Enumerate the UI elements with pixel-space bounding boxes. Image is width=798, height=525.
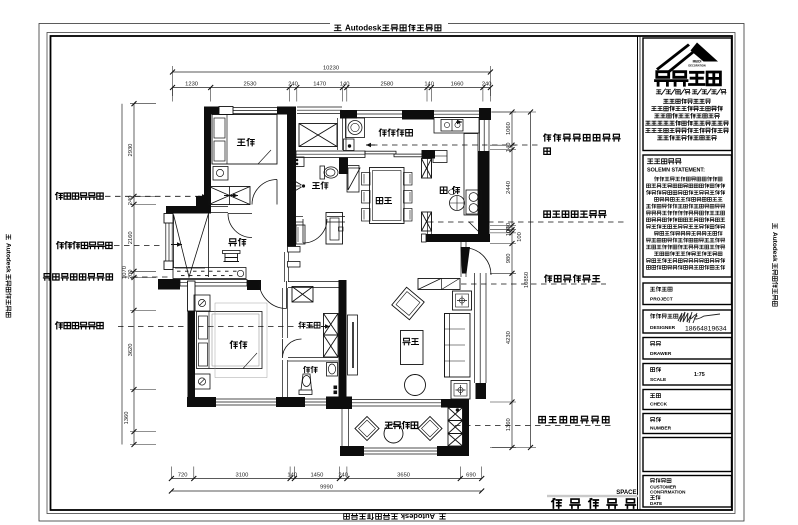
svg-text:Autodesk: Autodesk — [345, 24, 382, 33]
svg-text:PROJECT: PROJECT — [650, 297, 673, 303]
svg-text:3100: 3100 — [235, 473, 248, 479]
svg-text:100: 100 — [517, 232, 523, 242]
svg-text:240: 240 — [482, 82, 492, 88]
svg-text:SPACE: SPACE — [616, 490, 636, 496]
svg-text:100: 100 — [506, 226, 512, 236]
svg-text:DECORATION: DECORATION — [688, 63, 705, 67]
svg-text:10230: 10230 — [323, 66, 339, 72]
svg-text:2530: 2530 — [244, 82, 257, 88]
svg-text:140: 140 — [340, 82, 350, 88]
svg-text:CONFIRMATION: CONFIRMATION — [650, 490, 686, 495]
svg-text:NUMBER: NUMBER — [650, 426, 672, 432]
svg-text:1450: 1450 — [310, 473, 323, 479]
svg-text:240: 240 — [128, 196, 134, 206]
svg-text:690: 690 — [466, 473, 476, 479]
svg-text:MEIDI: MEIDI — [693, 60, 702, 64]
svg-text:240: 240 — [338, 473, 348, 479]
svg-text:3650: 3650 — [397, 473, 410, 479]
svg-text:CHECK: CHECK — [650, 402, 668, 408]
svg-text:10850: 10850 — [524, 272, 530, 288]
svg-text:DESIGNER: DESIGNER — [650, 325, 676, 331]
svg-text:200: 200 — [128, 270, 134, 280]
svg-text:2160: 2160 — [128, 231, 134, 244]
svg-text:1360: 1360 — [506, 418, 512, 431]
svg-text:3620: 3620 — [128, 343, 134, 356]
svg-text:4230: 4230 — [506, 331, 512, 344]
svg-text:720: 720 — [178, 473, 188, 479]
svg-text:1:75: 1:75 — [694, 372, 705, 378]
svg-text:SOLEMN STATEMENT:: SOLEMN STATEMENT: — [647, 168, 705, 174]
svg-text:140: 140 — [287, 473, 297, 479]
svg-text:18664819634: 18664819634 — [685, 326, 727, 333]
svg-text:2440: 2440 — [506, 181, 512, 194]
svg-text:1230: 1230 — [185, 82, 198, 88]
svg-text:DRAWER: DRAWER — [650, 351, 672, 357]
svg-text:980: 980 — [506, 254, 512, 264]
svg-text:SCALE: SCALE — [650, 377, 667, 383]
svg-text:240: 240 — [288, 82, 298, 88]
svg-text:2580: 2580 — [380, 82, 393, 88]
svg-text:Autodesk: Autodesk — [5, 243, 12, 273]
svg-text:140: 140 — [506, 143, 512, 153]
svg-text:1060: 1060 — [506, 122, 512, 135]
svg-text:1470: 1470 — [313, 82, 326, 88]
svg-text:Autodesk: Autodesk — [771, 232, 778, 262]
svg-text:1360: 1360 — [124, 412, 130, 425]
svg-text:Autodesk: Autodesk — [400, 512, 435, 521]
svg-text:DATE: DATE — [650, 501, 662, 506]
svg-text:9990: 9990 — [320, 485, 333, 491]
svg-text:140: 140 — [424, 82, 434, 88]
svg-text:2930: 2930 — [128, 144, 134, 157]
svg-text:1660: 1660 — [451, 82, 464, 88]
